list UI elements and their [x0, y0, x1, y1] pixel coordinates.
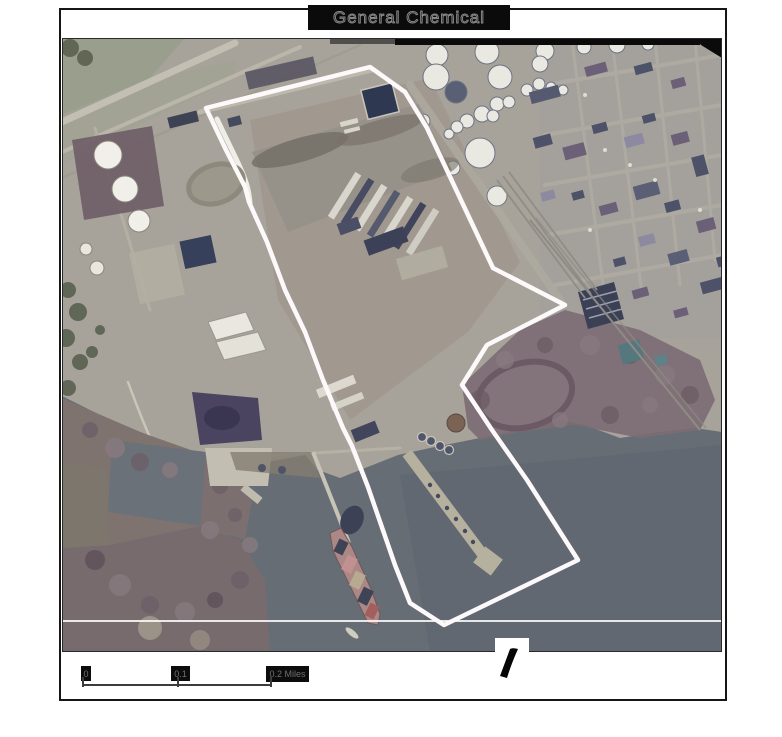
aerial-photo[interactable] [62, 38, 722, 652]
scale-label-02-miles: 0.2 Miles [266, 666, 309, 682]
scale-tick-right [270, 677, 272, 687]
map-title-bar: General Chemical [308, 5, 510, 30]
map-title: General Chemical [333, 8, 485, 28]
north-arrow-icon [492, 637, 537, 682]
scale-tick-mid [177, 677, 179, 687]
scale-label-01: 0.1 [171, 666, 190, 681]
scale-tick-left [82, 677, 84, 687]
map-page: General Chemical 0 0.1 0.2 Miles [0, 0, 782, 737]
